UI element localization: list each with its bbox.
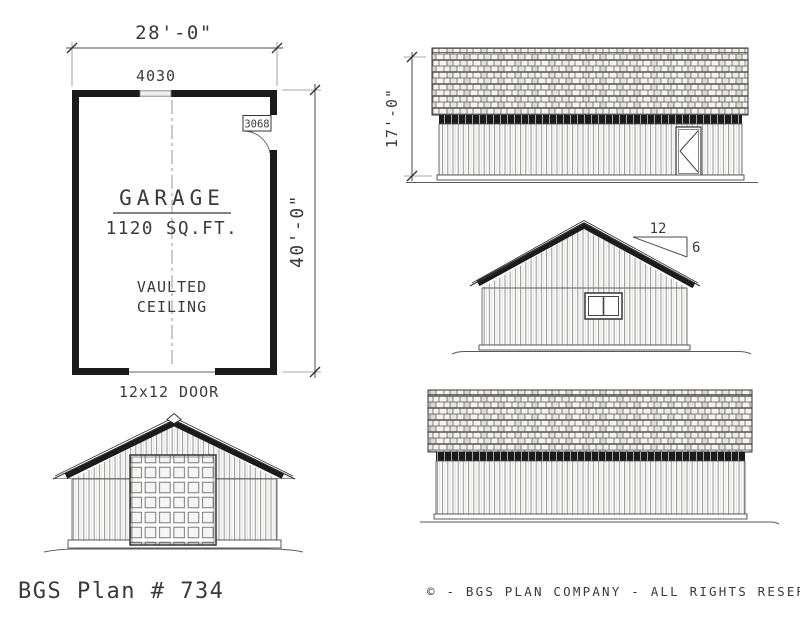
plan-title: BGS Plan # 734 xyxy=(18,579,224,604)
roof-shingles xyxy=(428,390,752,452)
service-door xyxy=(674,127,703,179)
roof-pitch-indicator: 12 6 xyxy=(633,221,700,257)
ceiling-note-line1: VAULTED xyxy=(137,278,207,296)
wall-top-left-segment xyxy=(72,90,140,97)
ground-line xyxy=(44,549,303,552)
door-frame xyxy=(676,127,701,176)
door-swing-arc xyxy=(243,131,270,153)
floor-plan-length-dimension: 40'-0" xyxy=(282,84,321,378)
entry-door-label: 3068 xyxy=(244,119,269,131)
foundation-strip xyxy=(479,345,690,350)
ceiling-note-line2: CEILING xyxy=(137,298,207,316)
plan-window-4030 xyxy=(140,91,171,96)
eave-fascia-band xyxy=(439,115,742,124)
wall-left xyxy=(72,90,79,375)
blueprint-sheet: 28'-0" 40'-0" 3068 4030 xyxy=(0,0,800,618)
overhead-door-label: 12x12 DOOR xyxy=(119,383,219,401)
entry-door-3068: 3068 xyxy=(243,116,271,154)
area-label: 1120 SQ.FT. xyxy=(106,219,238,239)
wall-siding xyxy=(436,461,745,514)
right-side-elevation xyxy=(420,390,779,524)
room-name-label: GARAGE xyxy=(119,186,225,210)
window xyxy=(585,293,622,319)
left-side-elevation: 17'-0" xyxy=(383,48,758,183)
ground-line xyxy=(420,522,779,524)
garage-door-panels xyxy=(130,455,216,545)
height-dimension: 17'-0" xyxy=(383,52,432,181)
front-elevation xyxy=(44,414,303,553)
width-dimension-label: 28'-0" xyxy=(135,22,213,44)
floor-plan: 28'-0" 40'-0" 3068 4030 xyxy=(66,22,321,401)
length-dimension-label: 40'-0" xyxy=(287,194,308,268)
wall-bottom-right-segment xyxy=(215,368,277,375)
overhead-garage-door xyxy=(130,455,216,545)
pitch-rise-label: 6 xyxy=(692,240,700,256)
wall-top-right-segment xyxy=(171,90,277,97)
ground-line xyxy=(452,352,751,355)
wall-right-upper-segment xyxy=(270,90,277,115)
roof-shingles xyxy=(432,48,748,115)
foundation-strip xyxy=(437,175,744,180)
eave-fascia-band xyxy=(436,452,745,461)
window-size-label: 4030 xyxy=(136,67,176,85)
wall-bottom-left-segment xyxy=(72,368,129,375)
extension-lines xyxy=(404,57,432,176)
blueprint-canvas: 28'-0" 40'-0" 3068 4030 xyxy=(0,0,800,618)
rear-elevation: 12 6 xyxy=(452,221,751,355)
foundation-strip xyxy=(434,514,747,519)
wall-right-lower-segment xyxy=(270,150,277,375)
copyright-notice: © - BGS PLAN COMPANY - ALL RIGHTS RESERV… xyxy=(427,584,800,599)
pitch-run-label: 12 xyxy=(650,221,667,237)
height-dimension-label: 17'-0" xyxy=(383,88,401,148)
